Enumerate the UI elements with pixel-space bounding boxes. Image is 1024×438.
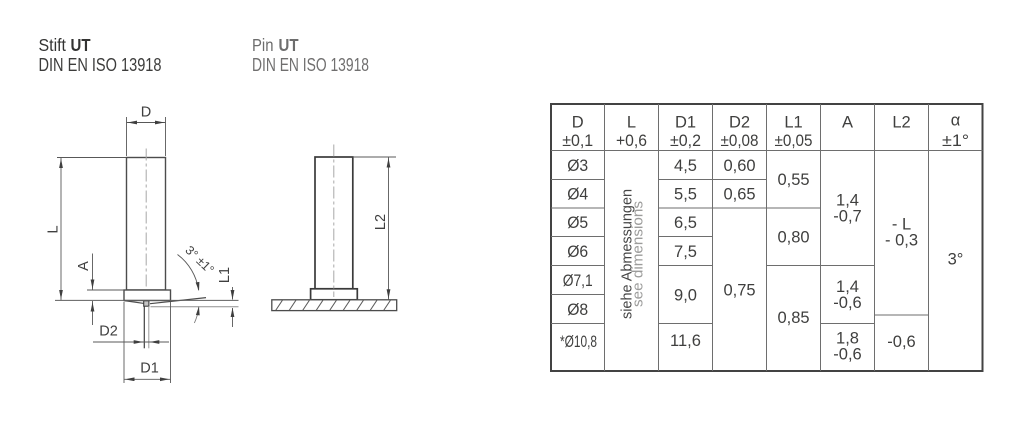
svg-text:11,6: 11,6 (670, 332, 701, 350)
svg-text:9,0: 9,0 (674, 286, 697, 304)
svg-text:UT: UT (279, 35, 299, 55)
svg-text:Ø6: Ø6 (567, 243, 588, 261)
svg-text:α: α (951, 112, 961, 130)
svg-text:Ø3: Ø3 (567, 157, 588, 175)
svg-text:D: D (572, 114, 584, 132)
svg-text:0,85: 0,85 (777, 309, 809, 327)
svg-text:Ø8: Ø8 (567, 301, 588, 319)
svg-text:UT: UT (71, 35, 91, 55)
svg-text:Stift: Stift (39, 35, 67, 55)
svg-text:-0,6: -0,6 (887, 333, 915, 351)
svg-text:+0,6: +0,6 (616, 132, 647, 150)
svg-text:Ø4: Ø4 (567, 186, 588, 204)
svg-text:5,5: 5,5 (674, 186, 697, 204)
svg-text:-0,6: -0,6 (833, 346, 861, 364)
svg-text:Ø7,1: Ø7,1 (563, 272, 593, 290)
svg-text:4,5: 4,5 (674, 157, 697, 175)
svg-text:-0,7: -0,7 (833, 208, 861, 226)
svg-text:L2: L2 (892, 114, 910, 132)
svg-text:L1: L1 (784, 114, 802, 132)
svg-text:D1: D1 (675, 114, 696, 132)
svg-text:0,60: 0,60 (723, 157, 755, 175)
svg-text:0,80: 0,80 (777, 229, 809, 247)
svg-text:0,65: 0,65 (723, 186, 755, 204)
svg-text:-0,6: -0,6 (833, 294, 861, 312)
svg-text:3°: 3° (948, 251, 964, 269)
svg-text:D2: D2 (99, 324, 118, 340)
svg-text:L: L (627, 114, 636, 132)
svg-text:D: D (141, 105, 151, 121)
svg-text:A: A (842, 114, 853, 132)
svg-text:L2: L2 (373, 214, 389, 230)
svg-text:see dimensions: see dimensions (631, 201, 647, 307)
svg-text:3° ±1°: 3° ±1° (182, 243, 216, 277)
svg-text:±0,2: ±0,2 (670, 132, 701, 150)
svg-text:- 0,3: - 0,3 (885, 232, 918, 250)
svg-text:Pin: Pin (252, 35, 274, 55)
svg-text:±0,08: ±0,08 (721, 132, 759, 150)
svg-text:A: A (76, 261, 92, 271)
svg-text:*Ø10,8: *Ø10,8 (560, 333, 597, 351)
svg-text:0,75: 0,75 (723, 281, 755, 299)
svg-text:DIN EN ISO 13918: DIN EN ISO 13918 (252, 55, 369, 75)
svg-text:L: L (46, 225, 62, 233)
svg-text:0,55: 0,55 (777, 171, 809, 189)
svg-text:6,5: 6,5 (674, 214, 697, 232)
svg-text:D1: D1 (140, 361, 159, 377)
svg-text:D2: D2 (729, 114, 750, 132)
svg-text:±0,05: ±0,05 (775, 132, 813, 150)
svg-text:7,5: 7,5 (674, 243, 697, 261)
svg-text:±0,1: ±0,1 (562, 132, 593, 150)
svg-text:DIN EN ISO 13918: DIN EN ISO 13918 (39, 55, 162, 75)
svg-text:Ø5: Ø5 (567, 214, 588, 232)
svg-text:±1°: ±1° (942, 132, 969, 150)
svg-text:L1: L1 (217, 267, 233, 283)
